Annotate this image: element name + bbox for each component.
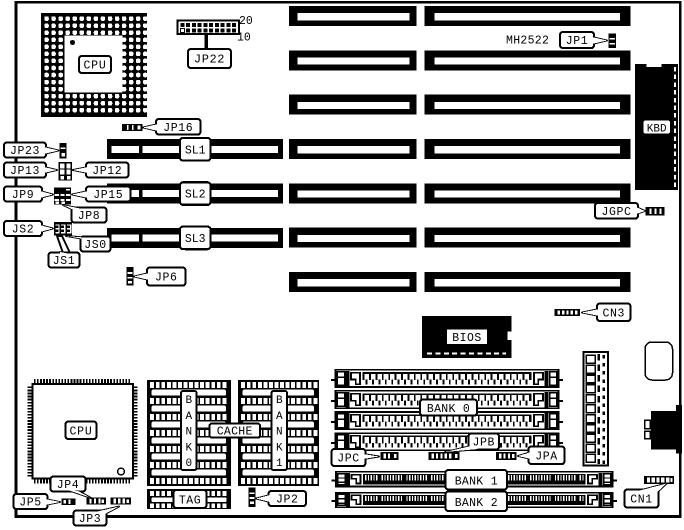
- svg-text:CPU: CPU: [83, 60, 106, 73]
- svg-text:1: 1: [276, 458, 283, 470]
- svg-text:TAG: TAG: [179, 495, 201, 508]
- svg-text:N: N: [276, 427, 283, 439]
- svg-text:B: B: [276, 395, 283, 407]
- svg-text:CACHE: CACHE: [217, 426, 253, 439]
- svg-text:SL3: SL3: [185, 233, 206, 246]
- svg-text:JP12: JP12: [92, 165, 122, 178]
- svg-text:JP16: JP16: [163, 122, 193, 135]
- svg-text:0: 0: [185, 458, 192, 470]
- svg-text:A: A: [185, 411, 192, 423]
- svg-text:JP5: JP5: [19, 497, 42, 510]
- svg-text:JP4: JP4: [57, 479, 80, 492]
- svg-text:BANK 2: BANK 2: [455, 497, 498, 510]
- svg-text:B: B: [185, 395, 192, 407]
- svg-text:JPA: JPA: [535, 450, 558, 463]
- svg-text:JPB: JPB: [472, 437, 495, 450]
- svg-text:10: 10: [237, 32, 251, 45]
- svg-text:SL1: SL1: [185, 144, 206, 157]
- svg-text:MH2522: MH2522: [506, 35, 549, 48]
- svg-text:JP23: JP23: [10, 145, 40, 158]
- svg-text:JS2: JS2: [12, 224, 35, 237]
- svg-text:JP8: JP8: [78, 210, 101, 223]
- svg-text:N: N: [185, 427, 192, 439]
- svg-text:JP9: JP9: [12, 189, 35, 202]
- svg-text:JP1: JP1: [566, 35, 589, 48]
- svg-text:CN3: CN3: [602, 307, 625, 320]
- svg-text:CPU: CPU: [69, 426, 92, 439]
- svg-text:KBD: KBD: [647, 124, 667, 136]
- svg-text:JP3: JP3: [79, 513, 102, 526]
- svg-text:JP15: JP15: [93, 189, 123, 202]
- svg-text:JGPC: JGPC: [601, 206, 631, 219]
- svg-text:BIOS: BIOS: [452, 332, 482, 345]
- svg-text:JP22: JP22: [194, 53, 225, 67]
- svg-text:CN1: CN1: [630, 494, 653, 507]
- svg-text:JP2: JP2: [276, 494, 299, 507]
- svg-text:JS0: JS0: [84, 239, 107, 252]
- svg-text:A: A: [276, 411, 283, 423]
- svg-text:20: 20: [239, 15, 253, 28]
- svg-text:JP13: JP13: [10, 165, 40, 178]
- svg-text:SL2: SL2: [185, 189, 206, 202]
- svg-text:JS1: JS1: [53, 255, 76, 268]
- svg-text:JP6: JP6: [155, 272, 178, 285]
- svg-text:JPC: JPC: [337, 453, 360, 466]
- svg-text:BANK 0: BANK 0: [427, 403, 470, 416]
- svg-text:K: K: [185, 442, 192, 454]
- svg-text:BANK 1: BANK 1: [455, 476, 498, 489]
- svg-text:K: K: [276, 442, 283, 454]
